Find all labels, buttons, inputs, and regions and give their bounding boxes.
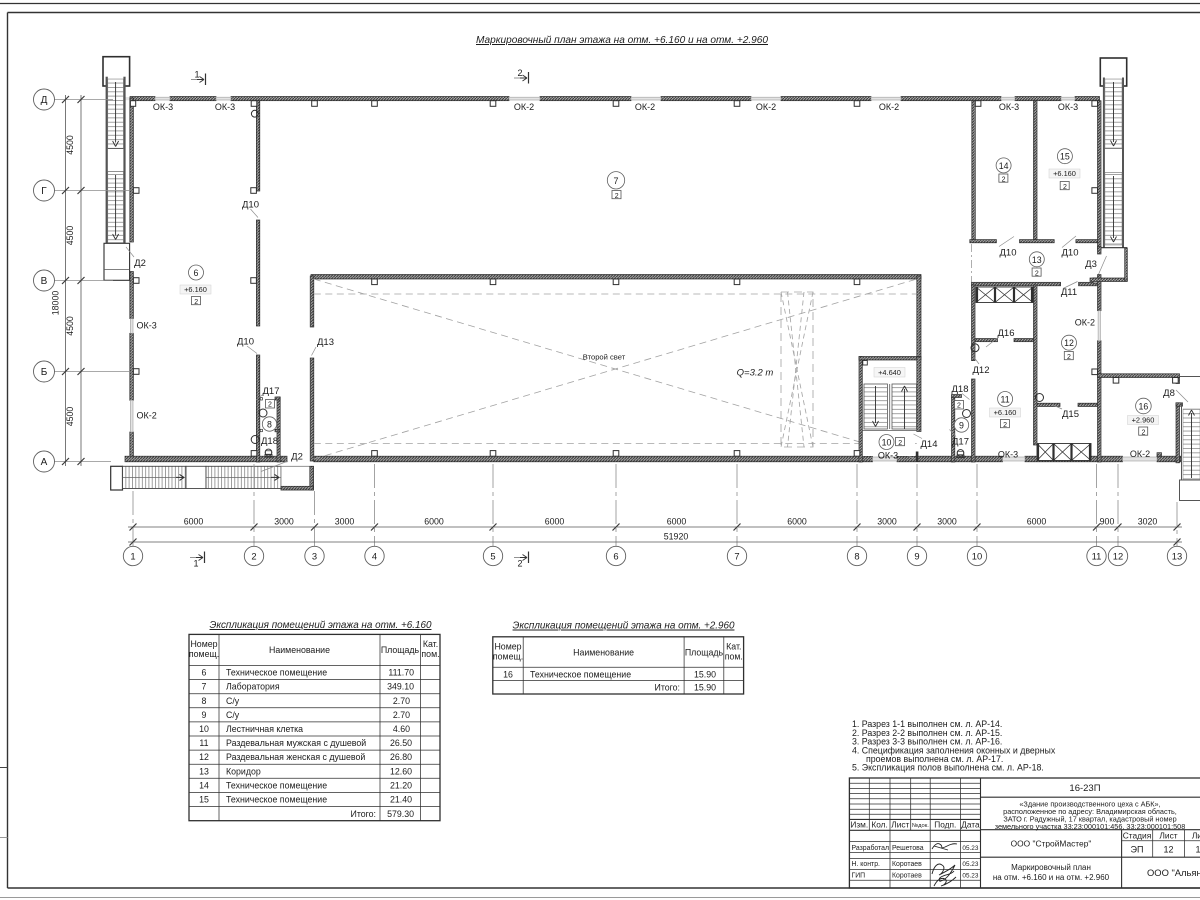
svg-text:16: 16	[503, 669, 513, 679]
svg-text:349.10: 349.10	[387, 682, 414, 692]
svg-text:Решетова: Решетова	[892, 845, 924, 852]
svg-text:2: 2	[1141, 429, 1145, 436]
svg-text:6000: 6000	[1027, 517, 1047, 527]
svg-text:помещ.: помещ.	[493, 652, 523, 662]
svg-text:2: 2	[517, 559, 522, 569]
svg-text:ОК-2: ОК-2	[137, 411, 157, 421]
svg-text:6000: 6000	[424, 517, 444, 527]
svg-text:Маркировочный план: Маркировочный план	[1011, 863, 1091, 872]
svg-text:05.23: 05.23	[962, 861, 978, 868]
svg-text:8: 8	[854, 551, 859, 562]
svg-text:6: 6	[194, 268, 199, 278]
svg-text:9: 9	[959, 421, 964, 431]
svg-text:Площадь: Площадь	[381, 645, 420, 655]
svg-text:3000: 3000	[937, 517, 957, 527]
svg-text:Номер: Номер	[494, 642, 521, 652]
svg-text:Лестничная клетка: Лестничная клетка	[226, 724, 303, 734]
svg-text:Экспликация помещений этажа на: Экспликация помещений этажа на отм. +2.9…	[513, 621, 735, 632]
svg-text:ЭП: ЭП	[1131, 845, 1144, 855]
svg-text:А: А	[41, 457, 48, 468]
svg-text:111.70: 111.70	[388, 668, 414, 678]
svg-text:Наименование: Наименование	[573, 648, 634, 658]
svg-text:ГИП: ГИП	[852, 872, 866, 879]
svg-text:Техническое помещение: Техническое помещение	[226, 795, 327, 805]
svg-text:2: 2	[615, 193, 619, 200]
svg-text:Г: Г	[41, 186, 47, 197]
svg-text:2: 2	[1067, 354, 1071, 361]
svg-text:Д18: Д18	[951, 384, 968, 395]
svg-text:С/у: С/у	[226, 710, 240, 720]
svg-text:Лист: Лист	[1159, 831, 1177, 841]
svg-text:12.60: 12.60	[390, 766, 412, 776]
svg-text:Техническое помещение: Техническое помещение	[226, 668, 327, 678]
svg-text:2: 2	[1035, 270, 1039, 277]
svg-text:900: 900	[1100, 517, 1115, 527]
svg-text:помещ.: помещ.	[189, 649, 219, 659]
svg-text:2: 2	[957, 403, 961, 410]
svg-text:ОК-3: ОК-3	[998, 450, 1018, 460]
svg-text:2: 2	[517, 68, 522, 78]
svg-text:+2.960: +2.960	[1132, 416, 1155, 425]
svg-text:4.60: 4.60	[393, 724, 410, 734]
svg-text:Д18: Д18	[261, 436, 278, 447]
svg-text:Д16: Д16	[997, 328, 1014, 339]
svg-text:16: 16	[1139, 402, 1149, 412]
svg-text:+6.160: +6.160	[184, 285, 207, 294]
svg-text:Итого:: Итого:	[655, 683, 681, 693]
svg-text:4500: 4500	[65, 407, 75, 427]
svg-text:Лис: Лис	[1192, 831, 1200, 841]
svg-text:2: 2	[268, 402, 272, 409]
svg-text:Д17: Д17	[262, 386, 279, 397]
svg-text:1: 1	[1195, 845, 1200, 855]
svg-text:11: 11	[1092, 551, 1102, 562]
svg-text:Коридор: Коридор	[226, 766, 261, 776]
svg-text:3: 3	[312, 551, 317, 562]
svg-text:ОК-2: ОК-2	[514, 102, 534, 112]
svg-text:7: 7	[202, 682, 207, 692]
svg-text:ООО "Альянс": ООО "Альянс"	[1147, 867, 1200, 878]
svg-text:Д: Д	[41, 95, 48, 106]
svg-text:ОК-3: ОК-3	[878, 451, 898, 461]
svg-text:15.90: 15.90	[694, 683, 716, 693]
svg-text:2: 2	[898, 440, 902, 447]
svg-text:1: 1	[193, 559, 198, 569]
svg-text:ОК-3: ОК-3	[1058, 102, 1078, 112]
svg-text:Коротаев: Коротаев	[892, 872, 922, 879]
svg-text:7: 7	[734, 551, 739, 562]
svg-text:Техническое помещение: Техническое помещение	[226, 780, 327, 790]
svg-text:6000: 6000	[545, 517, 565, 527]
svg-text:12: 12	[1064, 338, 1074, 348]
svg-text:8: 8	[267, 420, 272, 430]
svg-text:10: 10	[972, 551, 982, 562]
svg-text:2: 2	[1002, 176, 1006, 183]
svg-text:Д13: Д13	[317, 337, 334, 348]
svg-text:Раздевальная женская с душевой: Раздевальная женская с душевой	[226, 752, 365, 762]
svg-text:Экспликация помещений этажа на: Экспликация помещений этажа на отм. +6.1…	[210, 620, 432, 631]
svg-text:18000: 18000	[51, 291, 61, 316]
svg-text:Лист: Лист	[891, 820, 909, 830]
svg-text:12: 12	[1113, 551, 1123, 562]
svg-text:Д14: Д14	[920, 439, 937, 450]
svg-text:2.70: 2.70	[393, 696, 410, 706]
svg-text:Кат.: Кат.	[726, 642, 741, 652]
svg-text:Кат.: Кат.	[423, 639, 438, 649]
svg-text:4500: 4500	[65, 135, 75, 155]
svg-text:13: 13	[1172, 551, 1182, 562]
svg-text:Стадия: Стадия	[1123, 831, 1152, 841]
svg-text:Д2: Д2	[134, 258, 146, 269]
svg-text:Номер: Номер	[190, 639, 217, 649]
svg-text:ООО "СтройМастер": ООО "СтройМастер"	[1011, 839, 1092, 849]
svg-text:пом.: пом.	[421, 649, 439, 659]
svg-text:Раздевальная мужская с душевой: Раздевальная мужская с душевой	[226, 738, 366, 748]
svg-text:Техническое помещение: Техническое помещение	[530, 669, 631, 679]
svg-text:Кол.: Кол.	[871, 820, 887, 830]
svg-text:на отм. +6.160 и на отм. +2.96: на отм. +6.160 и на отм. +2.960	[993, 873, 1110, 882]
svg-text:земельного участка 33:23:00010: земельного участка 33:23:000101:456, 33:…	[995, 822, 1186, 831]
svg-text:5. Экспликация полов выполнена: 5. Экспликация полов выполнена см. л. АР…	[852, 763, 1044, 773]
svg-text:Д12: Д12	[972, 365, 989, 376]
svg-text:10: 10	[199, 724, 209, 734]
svg-text:+4.640: +4.640	[878, 368, 901, 377]
svg-text:Д17: Д17	[952, 437, 969, 448]
svg-text:ОК-2: ОК-2	[879, 102, 899, 112]
svg-text:6: 6	[202, 668, 207, 678]
svg-text:9: 9	[202, 710, 207, 720]
svg-text:1: 1	[130, 551, 135, 562]
svg-text:21.20: 21.20	[390, 780, 412, 790]
svg-text:ОК-2: ОК-2	[756, 102, 776, 112]
svg-text:3020: 3020	[1138, 517, 1158, 527]
svg-text:Н. контр.: Н. контр.	[852, 861, 881, 868]
svg-text:Д2: Д2	[291, 452, 303, 463]
svg-text:№док.: №док.	[912, 823, 929, 829]
svg-text:16-23П: 16-23П	[1069, 783, 1100, 794]
svg-text:ОК-2: ОК-2	[1075, 318, 1095, 328]
svg-text:Д10: Д10	[237, 337, 254, 348]
svg-text:8: 8	[202, 696, 207, 706]
svg-text:пом.: пом.	[725, 652, 743, 662]
svg-text:21.40: 21.40	[390, 795, 412, 805]
svg-text:Д3: Д3	[1085, 259, 1097, 270]
svg-text:6000: 6000	[184, 517, 204, 527]
svg-text:Второй свет: Второй свет	[583, 353, 626, 362]
svg-text:2: 2	[251, 551, 256, 562]
svg-text:12: 12	[199, 752, 209, 762]
svg-text:Б: Б	[41, 367, 48, 378]
svg-text:3000: 3000	[877, 517, 897, 527]
svg-text:4: 4	[372, 551, 377, 562]
svg-text:Разработал: Разработал	[852, 844, 890, 852]
svg-text:2.70: 2.70	[393, 710, 410, 720]
svg-text:4500: 4500	[65, 316, 75, 336]
svg-text:Итого:: Итого:	[351, 809, 377, 819]
svg-text:2: 2	[194, 299, 198, 306]
svg-text:3000: 3000	[335, 517, 355, 527]
svg-text:Дата: Дата	[961, 820, 980, 830]
svg-text:3000: 3000	[274, 517, 294, 527]
svg-text:12: 12	[1163, 845, 1173, 855]
svg-text:В: В	[41, 276, 48, 287]
svg-text:+6.160: +6.160	[1053, 169, 1076, 178]
svg-text:Маркировочный план этажа на от: Маркировочный план этажа на отм. +6.160 …	[476, 35, 768, 46]
svg-text:ОК-3: ОК-3	[137, 321, 157, 331]
svg-text:Q=3.2 m: Q=3.2 m	[737, 368, 774, 379]
svg-text:Д10: Д10	[1061, 248, 1078, 259]
svg-text:Изм.: Изм.	[850, 820, 868, 830]
svg-text:Лаборатория: Лаборатория	[226, 682, 280, 692]
svg-text:579.30: 579.30	[387, 809, 414, 819]
svg-text:1: 1	[194, 70, 199, 80]
svg-text:Коротаев: Коротаев	[892, 861, 922, 868]
svg-text:13: 13	[199, 766, 209, 776]
svg-text:С/у: С/у	[226, 696, 240, 706]
svg-text:14: 14	[999, 161, 1009, 171]
svg-text:13: 13	[1032, 255, 1042, 265]
svg-text:Д10: Д10	[999, 248, 1016, 259]
svg-text:10: 10	[882, 437, 892, 447]
svg-text:14: 14	[199, 780, 209, 790]
svg-text:Д10: Д10	[242, 200, 259, 211]
svg-text:05.23: 05.23	[962, 872, 978, 879]
svg-text:26.80: 26.80	[390, 752, 412, 762]
svg-text:15: 15	[199, 795, 209, 805]
svg-text:05.23: 05.23	[962, 845, 978, 852]
svg-text:Д8: Д8	[1163, 388, 1175, 399]
svg-text:Площадь: Площадь	[685, 648, 724, 658]
svg-text:5: 5	[490, 551, 495, 562]
svg-text:4500: 4500	[65, 226, 75, 246]
svg-text:ОК-3: ОК-3	[999, 102, 1019, 112]
svg-text:7: 7	[613, 176, 618, 186]
svg-text:51920: 51920	[664, 532, 689, 542]
svg-text:ОК-3: ОК-3	[215, 102, 235, 112]
svg-text:ОК-3: ОК-3	[153, 102, 173, 112]
svg-text:26.50: 26.50	[390, 738, 412, 748]
svg-text:Подп.: Подп.	[934, 820, 956, 830]
svg-text:2: 2	[1003, 422, 1007, 429]
svg-text:ОК-2: ОК-2	[635, 102, 655, 112]
svg-text:Д15: Д15	[1062, 409, 1079, 420]
svg-text:9: 9	[914, 551, 919, 562]
svg-text:11: 11	[1001, 395, 1010, 405]
svg-text:6000: 6000	[667, 517, 687, 527]
svg-text:6: 6	[613, 551, 618, 562]
svg-text:2: 2	[1063, 184, 1067, 191]
svg-text:15.90: 15.90	[694, 669, 716, 679]
svg-text:15: 15	[1060, 152, 1070, 162]
svg-text:11: 11	[199, 738, 208, 748]
svg-text:+6.160: +6.160	[994, 408, 1017, 417]
svg-text:Наименование: Наименование	[269, 645, 330, 655]
svg-text:6000: 6000	[787, 517, 807, 527]
